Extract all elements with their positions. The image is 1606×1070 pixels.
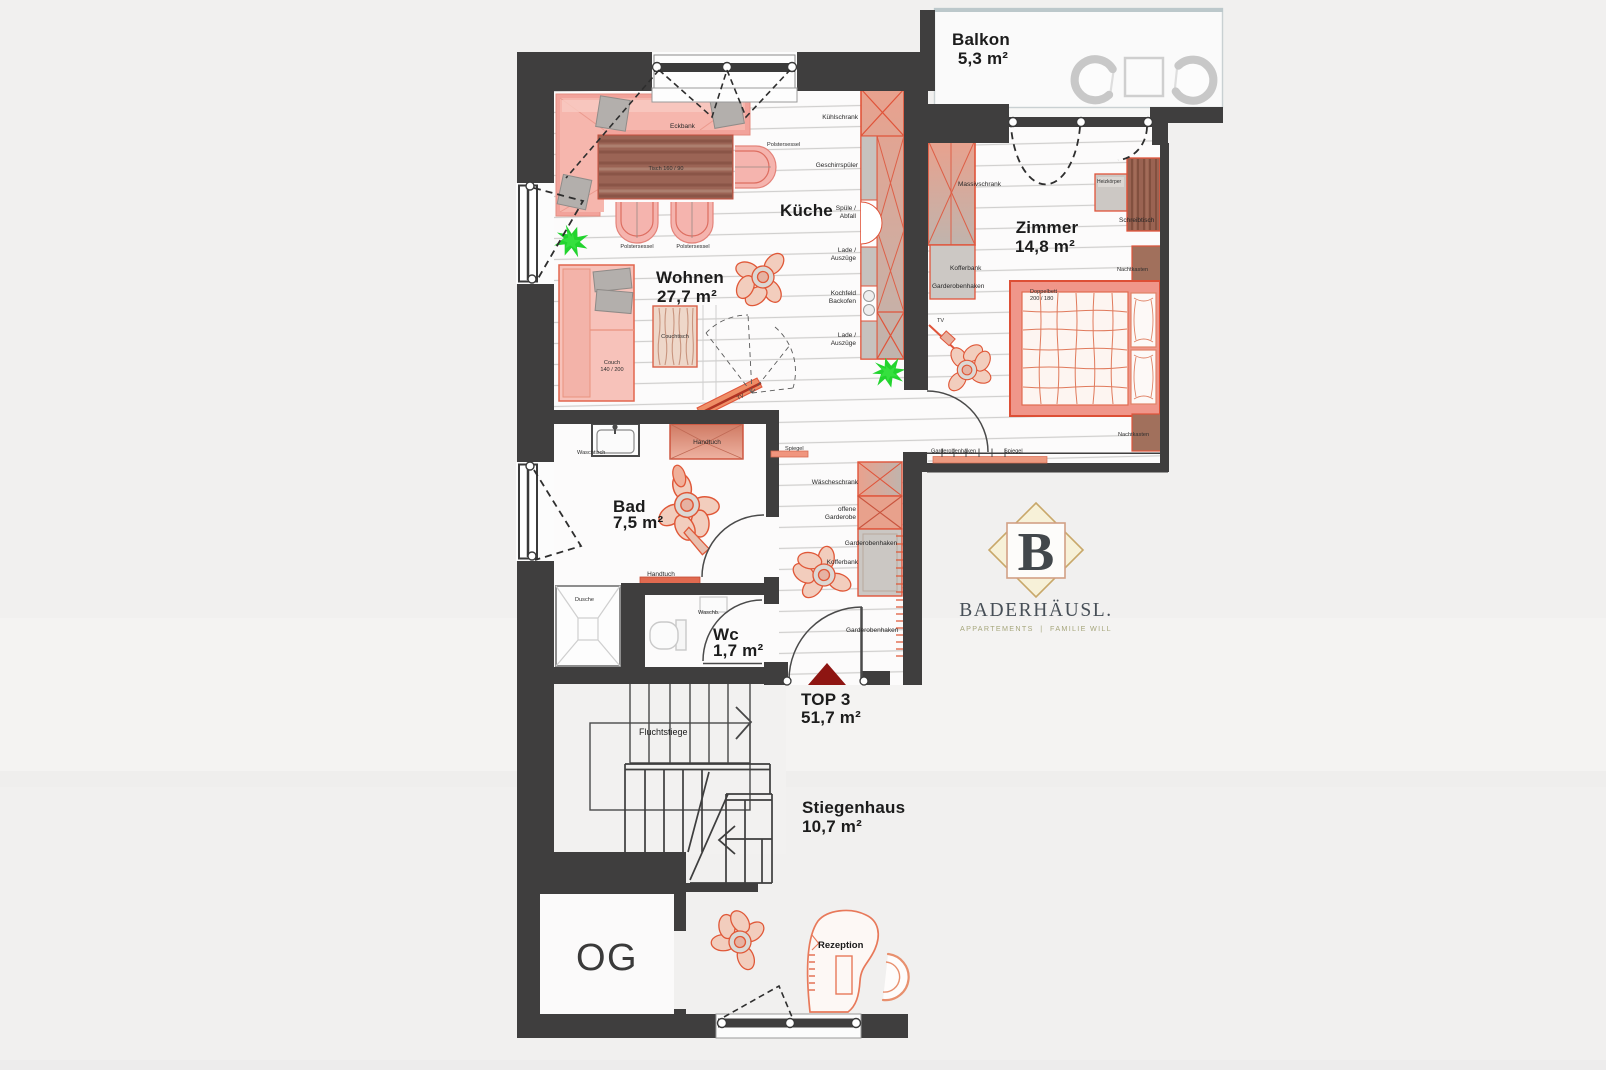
svg-text:Schreibtisch: Schreibtisch	[1119, 217, 1155, 224]
svg-text:140 / 200: 140 / 200	[600, 367, 623, 373]
svg-text:Geschirrspüler: Geschirrspüler	[816, 162, 859, 169]
svg-text:Kofferbank: Kofferbank	[950, 265, 982, 272]
svg-text:Tisch 160 / 90: Tisch 160 / 90	[649, 166, 684, 172]
svg-text:Garderobenhaken: Garderobenhaken	[845, 540, 898, 547]
svg-text:Couch: Couch	[604, 360, 620, 366]
svg-text:7,5 m²: 7,5 m²	[613, 513, 663, 532]
svg-text:Wäscheschrank: Wäscheschrank	[812, 479, 859, 486]
svg-text:Rezeption: Rezeption	[818, 940, 864, 951]
svg-text:Garderobenhaken: Garderobenhaken	[932, 283, 985, 290]
svg-text:BADERHÄUSL.: BADERHÄUSL.	[959, 600, 1113, 621]
svg-text:TOP 3: TOP 3	[801, 690, 851, 709]
svg-text:Auszüge: Auszüge	[831, 340, 857, 347]
svg-text:Waschb.: Waschb.	[698, 610, 720, 616]
svg-text:Garderobe: Garderobe	[825, 514, 856, 521]
svg-text:Kühlschrank: Kühlschrank	[822, 114, 859, 121]
svg-text:Spiegel: Spiegel	[785, 446, 804, 452]
svg-text:Doppelbett: Doppelbett	[1030, 289, 1058, 295]
svg-text:OG: OG	[576, 937, 638, 979]
svg-text:Polstersessel: Polstersessel	[767, 142, 800, 148]
svg-text:27,7 m²: 27,7 m²	[657, 287, 717, 306]
svg-text:Eckbank: Eckbank	[670, 123, 696, 130]
svg-text:Balkon: Balkon	[952, 30, 1010, 49]
svg-text:B: B	[1018, 521, 1055, 582]
svg-text:5,3 m²: 5,3 m²	[958, 49, 1008, 68]
svg-text:14,8 m²: 14,8 m²	[1015, 237, 1075, 256]
svg-text:Kochfeld: Kochfeld	[831, 290, 857, 297]
svg-text:TV: TV	[937, 318, 944, 324]
svg-text:1,7 m²: 1,7 m²	[713, 641, 763, 660]
svg-text:Lade /: Lade /	[838, 247, 856, 254]
svg-text:Polstersessel: Polstersessel	[620, 244, 653, 250]
svg-text:Backofen: Backofen	[829, 298, 856, 305]
svg-text:10,7 m²: 10,7 m²	[802, 817, 862, 836]
svg-text:Spüle /: Spüle /	[836, 205, 856, 212]
svg-text:Spiegel: Spiegel	[1004, 449, 1023, 455]
svg-text:Zimmer: Zimmer	[1016, 218, 1079, 237]
svg-text:Stiegenhaus: Stiegenhaus	[802, 798, 905, 817]
svg-text:Dusche: Dusche	[575, 597, 594, 603]
svg-text:Polstersessel: Polstersessel	[676, 244, 709, 250]
svg-text:Handtuch: Handtuch	[647, 571, 675, 578]
svg-text:Couchtisch: Couchtisch	[661, 334, 689, 340]
svg-text:Nachtkasten: Nachtkasten	[1118, 432, 1149, 438]
svg-text:Heizkörper: Heizkörper	[1097, 179, 1122, 185]
svg-text:Küche: Küche	[780, 201, 833, 220]
svg-text:Wohnen: Wohnen	[656, 268, 724, 287]
svg-text:Waschtisch: Waschtisch	[577, 450, 605, 456]
svg-text:200 / 180: 200 / 180	[1030, 296, 1053, 302]
svg-text:Massivschrank: Massivschrank	[958, 181, 1002, 188]
svg-text:Nachtkasten: Nachtkasten	[1117, 267, 1148, 273]
svg-text:Abfall: Abfall	[840, 213, 857, 220]
svg-text:Garderobenhaken: Garderobenhaken	[931, 449, 976, 455]
svg-text:Auszüge: Auszüge	[831, 255, 857, 262]
svg-text:Garderobenhaken: Garderobenhaken	[846, 627, 899, 634]
svg-text:APPARTEMENTS | FAMILIE WILL: APPARTEMENTS | FAMILIE WILL	[960, 624, 1112, 633]
svg-text:Kofferbank: Kofferbank	[827, 559, 859, 566]
svg-text:Fluchtstiege: Fluchtstiege	[639, 727, 688, 737]
svg-text:51,7 m²: 51,7 m²	[801, 708, 861, 727]
svg-text:offene: offene	[838, 506, 856, 513]
svg-text:Lade /: Lade /	[838, 332, 856, 339]
svg-text:Handtuch: Handtuch	[693, 439, 721, 446]
